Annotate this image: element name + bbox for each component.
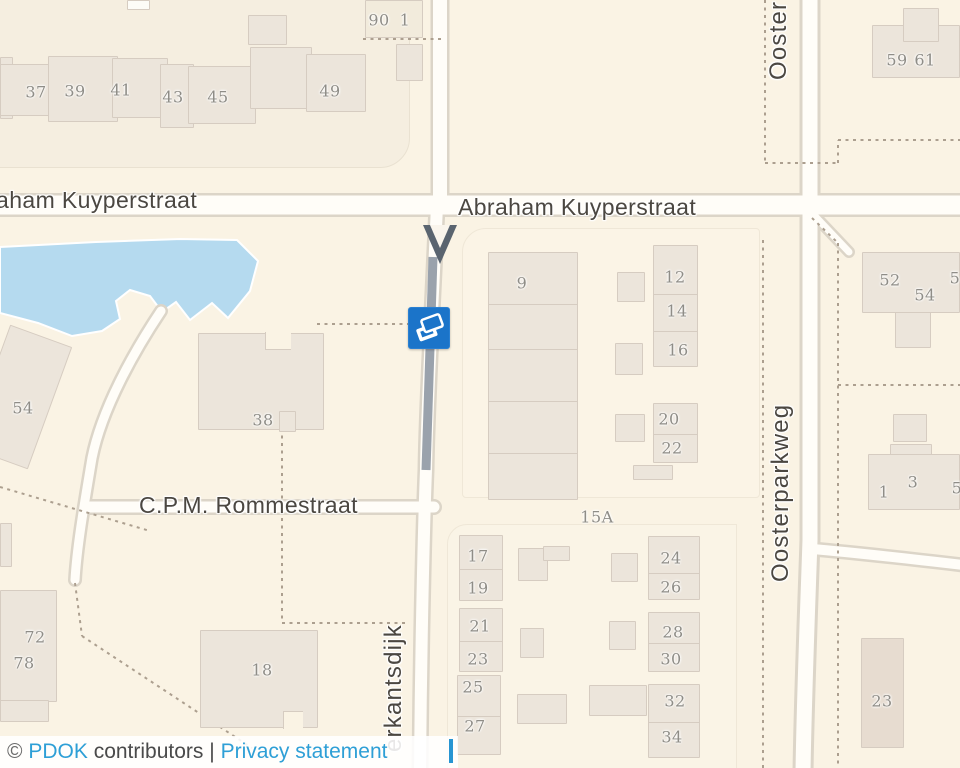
- shed: [615, 343, 643, 375]
- copyright-symbol: ©: [7, 740, 22, 764]
- house-number-label: 49: [319, 82, 340, 101]
- attribution-text: contributors: [94, 740, 204, 764]
- shed: [609, 621, 636, 650]
- house-number-label: 90: [368, 11, 389, 30]
- house-number-label: 23: [871, 692, 892, 711]
- pdok-link[interactable]: PDOK: [28, 740, 88, 764]
- house-number-label: 16: [667, 341, 688, 360]
- text-cursor: [449, 739, 453, 763]
- house-number-label: 34: [661, 728, 682, 747]
- house-number-label: 20: [658, 410, 679, 429]
- house-number-label: 12: [664, 268, 685, 287]
- house-number-label: 5: [952, 479, 960, 498]
- shed: [589, 685, 647, 716]
- layers-marker-icon[interactable]: [408, 307, 450, 349]
- building: [0, 700, 49, 722]
- shed: [611, 553, 638, 582]
- street-label-abraham-kuyperstraat: Abraham Kuyperstraat: [458, 194, 696, 221]
- shed: [615, 414, 645, 442]
- house-number-label: 32: [664, 692, 685, 711]
- house-number-label: 3: [908, 473, 919, 492]
- shed: [520, 628, 544, 658]
- house-number-label: 41: [110, 81, 131, 100]
- house-number-label: 22: [661, 439, 682, 458]
- layers-icon: [409, 308, 449, 348]
- house-number-label: 9: [517, 274, 528, 293]
- building: [127, 0, 150, 10]
- house-number-label: 18: [251, 661, 272, 680]
- pond-water: [0, 239, 258, 336]
- house-number-label: 27: [464, 717, 485, 736]
- house-number-label: 72: [24, 628, 45, 647]
- house-number-label: 78: [13, 654, 34, 673]
- street-label-cpm-rommestraat: C.P.M. Rommestraat: [139, 492, 358, 519]
- street-label-abraham-kuyperstraat-west: aham Kuyperstraat: [0, 187, 197, 214]
- house-number-label: 17: [467, 547, 488, 566]
- house-number-label: 19: [467, 579, 488, 598]
- house-number-label: 23: [467, 650, 488, 669]
- house-number-label: 15A: [580, 508, 613, 527]
- road-oosterparkweg: [803, 0, 810, 768]
- shed: [543, 546, 570, 561]
- attribution-bar: © PDOK contributors | Privacy statement: [0, 736, 458, 768]
- house-number-label: 26: [660, 578, 681, 597]
- house-number-label: 54: [12, 399, 33, 418]
- shed: [893, 414, 927, 442]
- house-number-label: 45: [207, 88, 228, 107]
- shed: [617, 272, 645, 302]
- house-number-label: 21: [469, 617, 490, 636]
- building: [279, 411, 296, 432]
- house-number-label: 24: [660, 549, 681, 568]
- shed: [517, 694, 567, 724]
- building: [0, 523, 12, 567]
- building-9: [488, 252, 578, 500]
- house-number-label: 59: [886, 51, 907, 70]
- street-label-erkantsdijk: erkantsdijk: [380, 624, 408, 752]
- street-label-oosterparkweg-top: Ooster: [765, 1, 793, 80]
- house-number-label: 5: [950, 269, 960, 288]
- shed: [633, 465, 673, 480]
- privacy-statement-link[interactable]: Privacy statement: [221, 740, 388, 764]
- street-label-oosterparkweg: Oosterparkweg: [767, 404, 795, 582]
- house-number-label: 37: [25, 83, 46, 102]
- house-number-label: 25: [462, 678, 483, 697]
- building-52-54: [862, 252, 960, 313]
- building-notch: [283, 711, 303, 729]
- building: [396, 44, 423, 81]
- building: [895, 312, 931, 348]
- house-number-label: 14: [666, 302, 687, 321]
- house-number-label: 30: [660, 650, 681, 669]
- house-number-label: 38: [252, 411, 273, 430]
- house-number-label: 54: [914, 286, 935, 305]
- house-number-label: 52: [879, 271, 900, 290]
- house-number-label: 43: [162, 88, 183, 107]
- building: [250, 47, 312, 109]
- house-number-label: 1: [400, 11, 411, 30]
- building-notch: [265, 332, 291, 350]
- building: [903, 8, 939, 42]
- house-number-label: 61: [914, 51, 935, 70]
- building: [248, 15, 287, 45]
- house-number-label: 39: [64, 82, 85, 101]
- house-number-label: 1: [879, 483, 890, 502]
- map-canvas[interactable]: 3739414345499015961912141620225254554381…: [0, 0, 960, 768]
- house-number-label: 28: [662, 623, 683, 642]
